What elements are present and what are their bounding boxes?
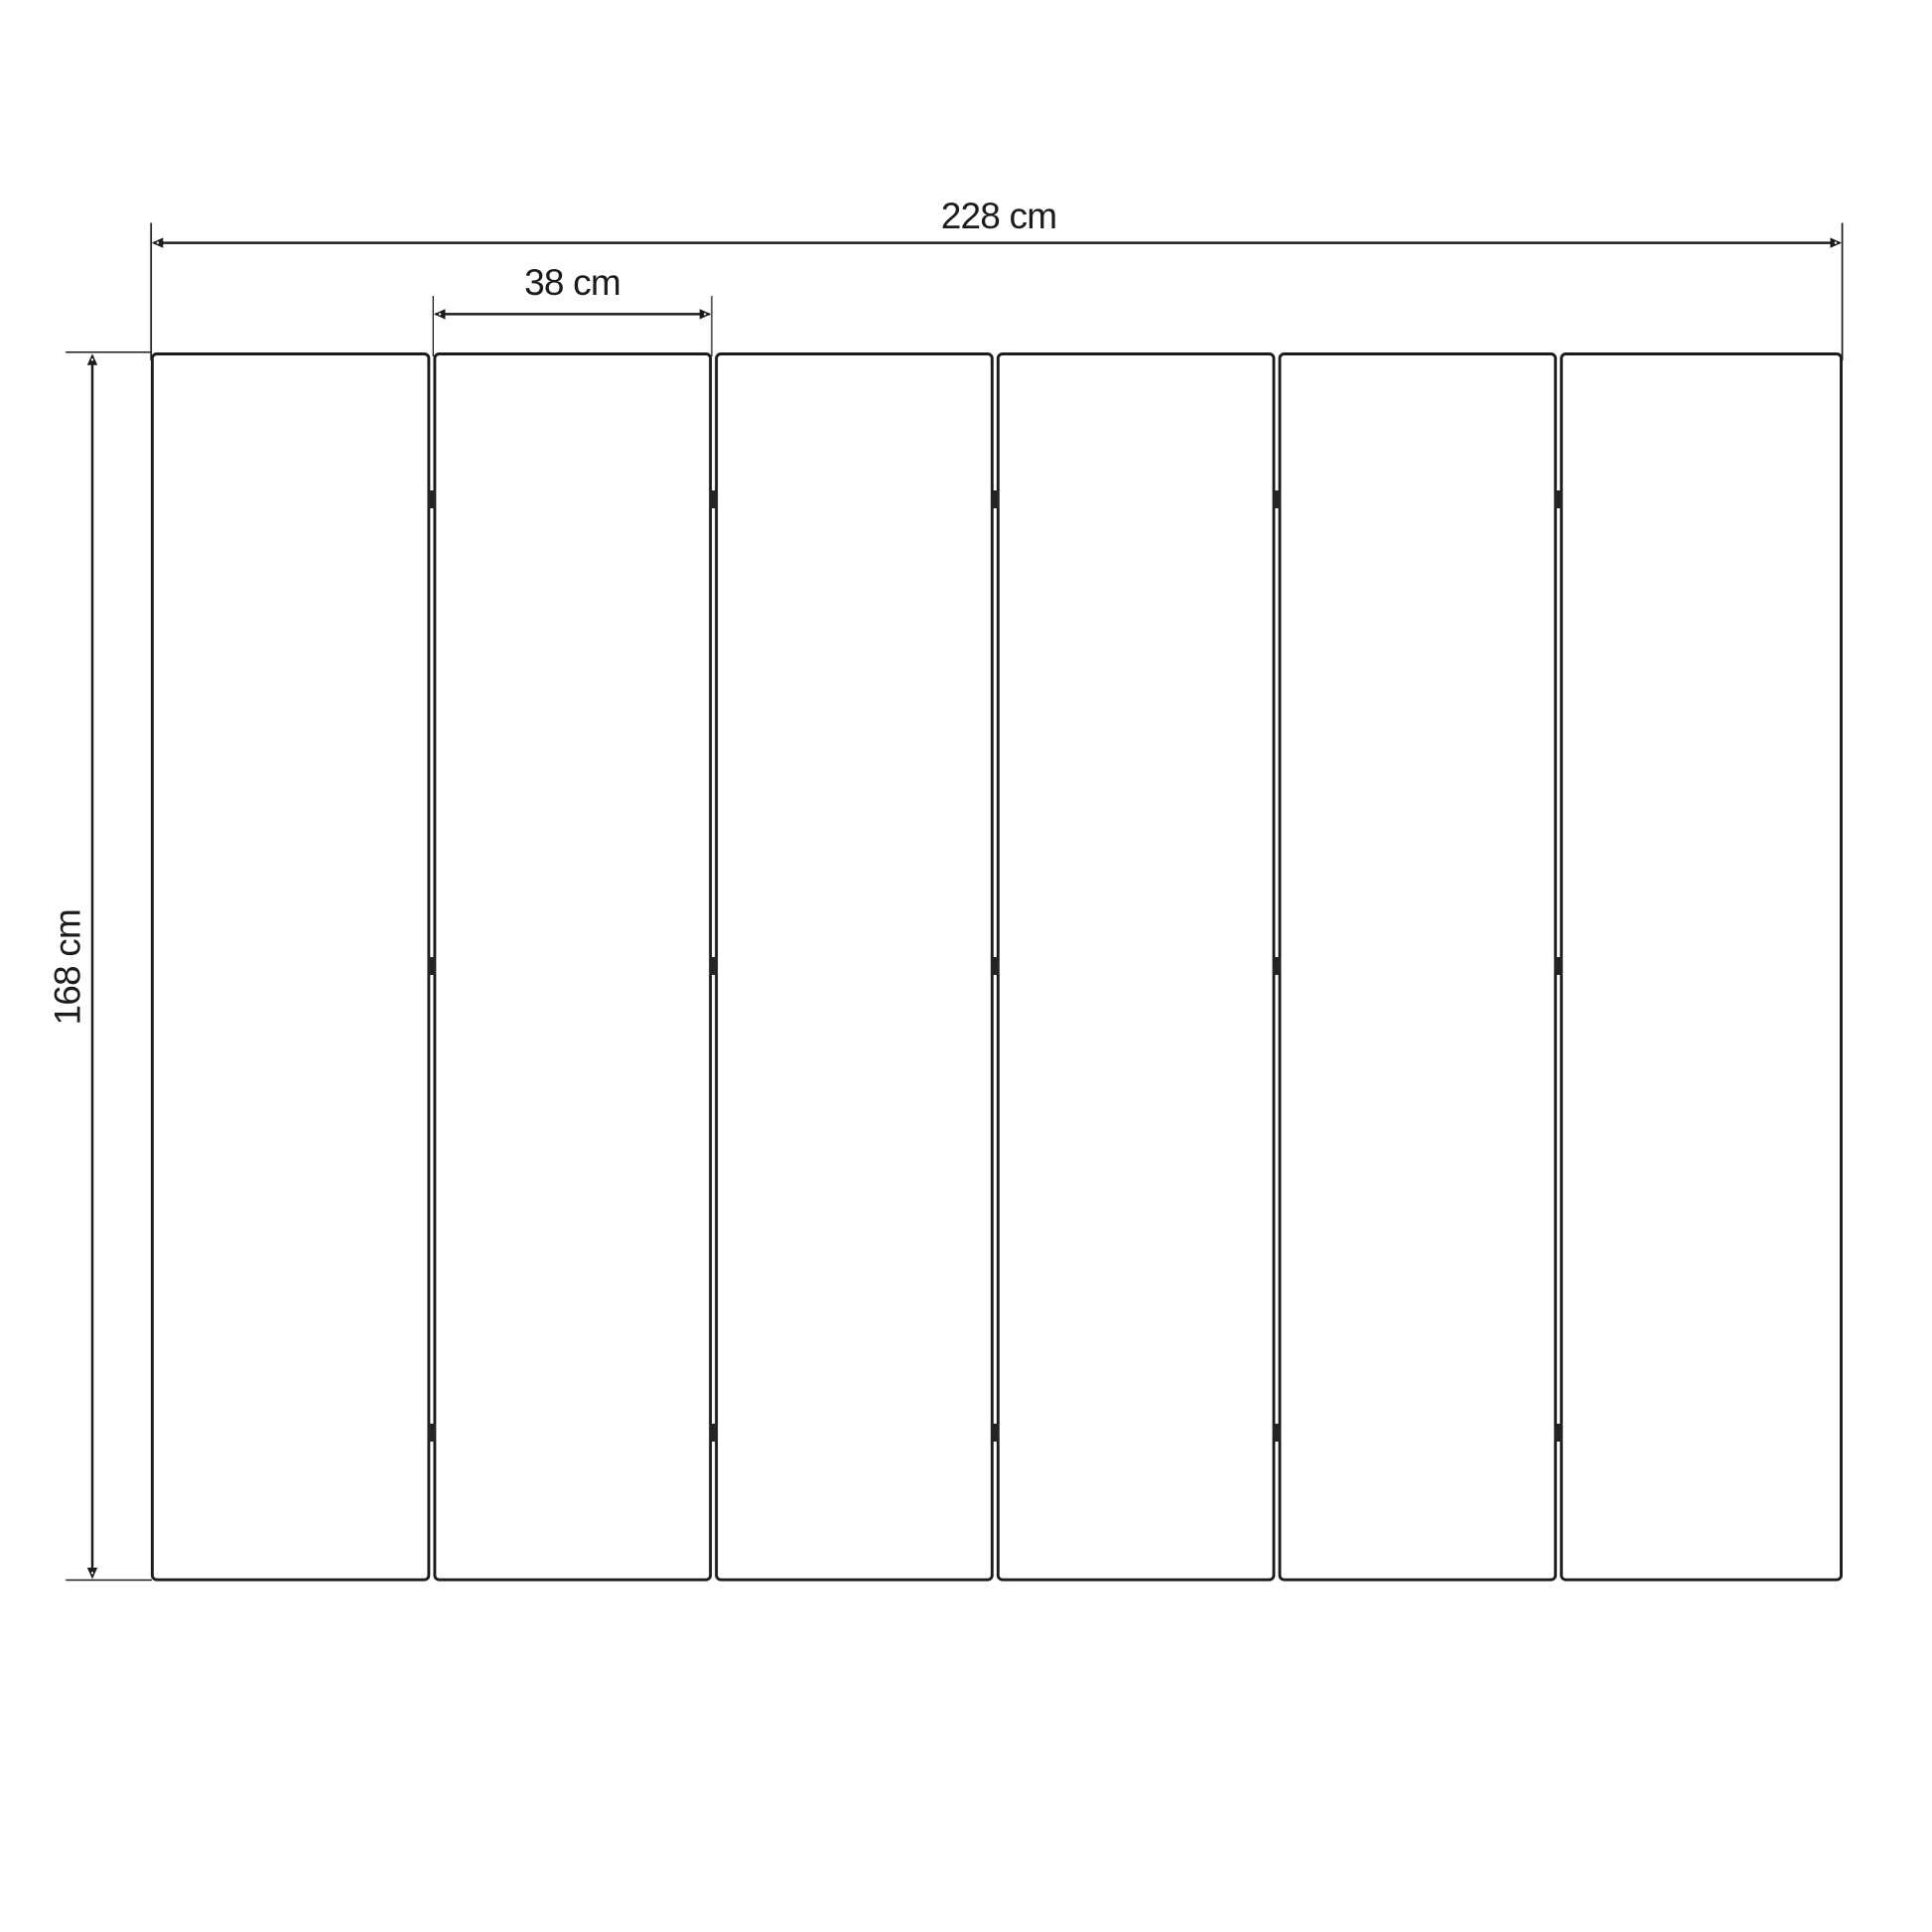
svg-text:228 cm: 228 cm [941,196,1057,236]
svg-text:38 cm: 38 cm [524,262,621,303]
svg-text:168 cm: 168 cm [48,909,88,1026]
